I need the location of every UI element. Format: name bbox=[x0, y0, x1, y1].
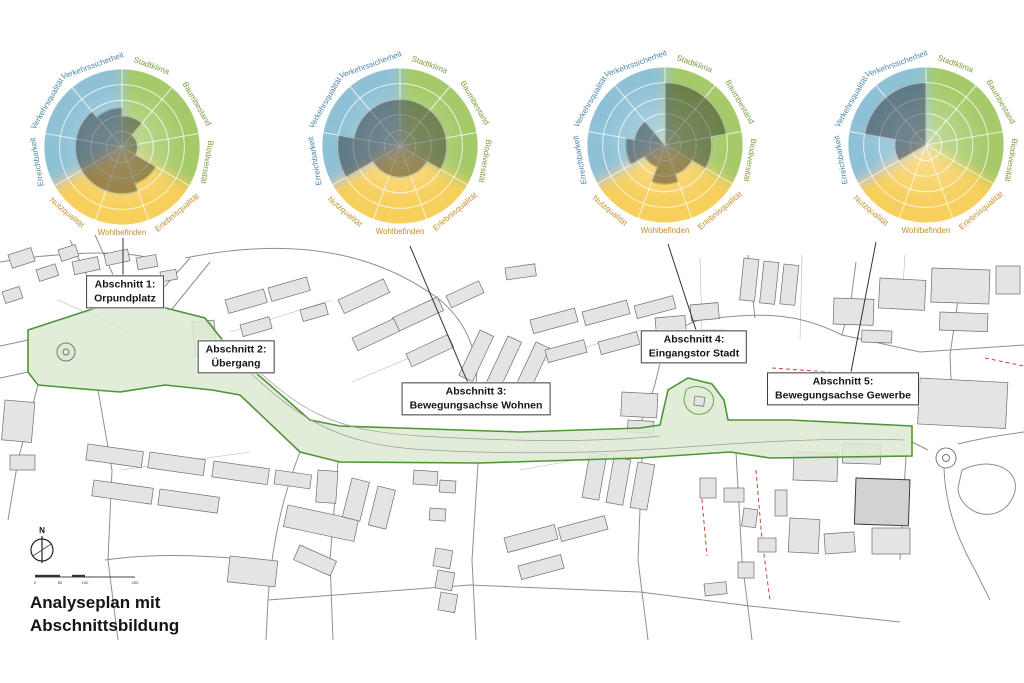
roundabout-left-icon bbox=[57, 343, 75, 361]
page-title-line-1: Analyseplan mit bbox=[30, 592, 179, 615]
scale-tick: 50 bbox=[58, 580, 63, 585]
section-label-line: Abschnitt 4: bbox=[649, 333, 739, 347]
radar-axis-label: Wohlbefinden bbox=[98, 228, 147, 237]
section-label-4: Abschnitt 4: Eingangstor Stadt bbox=[641, 330, 747, 363]
radar-axis-label: Biodiversität bbox=[742, 138, 759, 183]
section-label-1: Abschnitt 1: Orpundplatz bbox=[86, 275, 164, 308]
section-label-line: Eingangstor Stadt bbox=[649, 347, 739, 361]
roundabout-right-icon bbox=[936, 448, 956, 468]
radar-chart-section-3: StadtklimaBaumbestandBiodiversitätErlebn… bbox=[294, 40, 506, 252]
radar-axis-label: Biodiversität bbox=[1003, 138, 1020, 183]
page-title-line-2: Abschnittsbildung bbox=[30, 615, 179, 638]
scale-tick: 100 bbox=[82, 580, 89, 585]
radar-axis-label: Erreichbarkeit bbox=[28, 136, 46, 187]
section-label-5: Abschnitt 5: Bewegungsachse Gewerbe bbox=[767, 372, 919, 405]
section-label-line: Bewegungsachse Wohnen bbox=[410, 399, 543, 413]
radar-axis-label: Wohlbefinden bbox=[641, 226, 690, 235]
section-label-3: Abschnitt 3: Bewegungsachse Wohnen bbox=[402, 382, 551, 415]
radar-axis-label: Wohlbefinden bbox=[376, 227, 425, 236]
page-title: Analyseplan mit Abschnittsbildung bbox=[30, 592, 179, 638]
radar-axis-label: Biodiversität bbox=[477, 139, 494, 184]
section-label-line: Übergang bbox=[206, 357, 267, 371]
scale-bar: 0 50 100 200 bbox=[34, 575, 139, 585]
section-label-line: Bewegungsachse Gewerbe bbox=[775, 389, 911, 403]
section-label-line: Abschnitt 1: bbox=[94, 278, 156, 292]
north-arrow-icon: N bbox=[31, 526, 53, 563]
radar-axis-label: Erreichbarkeit bbox=[832, 134, 850, 185]
radar-chart-section-1: StadtklimaBaumbestandBiodiversitätErlebn… bbox=[16, 41, 228, 253]
scale-tick: 0 bbox=[34, 580, 37, 585]
section-label-line: Abschnitt 3: bbox=[410, 385, 543, 399]
radar-chart-section-5: StadtklimaBaumbestandBiodiversitätErlebn… bbox=[820, 39, 1024, 251]
section-label-line: Abschnitt 5: bbox=[775, 375, 911, 389]
radar-axis-label: Erreichbarkeit bbox=[571, 134, 589, 185]
section-label-line: Abschnitt 2: bbox=[206, 343, 267, 357]
scale-tick: 200 bbox=[132, 580, 139, 585]
analysis-plan-page: N 0 50 100 200 StadtklimaBaumbestandBiod… bbox=[0, 0, 1024, 683]
north-label: N bbox=[39, 526, 45, 535]
radar-axis-label: Erreichbarkeit bbox=[306, 135, 324, 186]
radar-chart-section-4: StadtklimaBaumbestandBiodiversitätErlebn… bbox=[559, 39, 771, 251]
radar-axis-label: Biodiversität bbox=[199, 140, 216, 185]
section-label-line: Orpundplatz bbox=[94, 292, 156, 306]
radar-axis-label: Wohlbefinden bbox=[902, 226, 951, 235]
section-label-2: Abschnitt 2: Übergang bbox=[198, 340, 275, 373]
